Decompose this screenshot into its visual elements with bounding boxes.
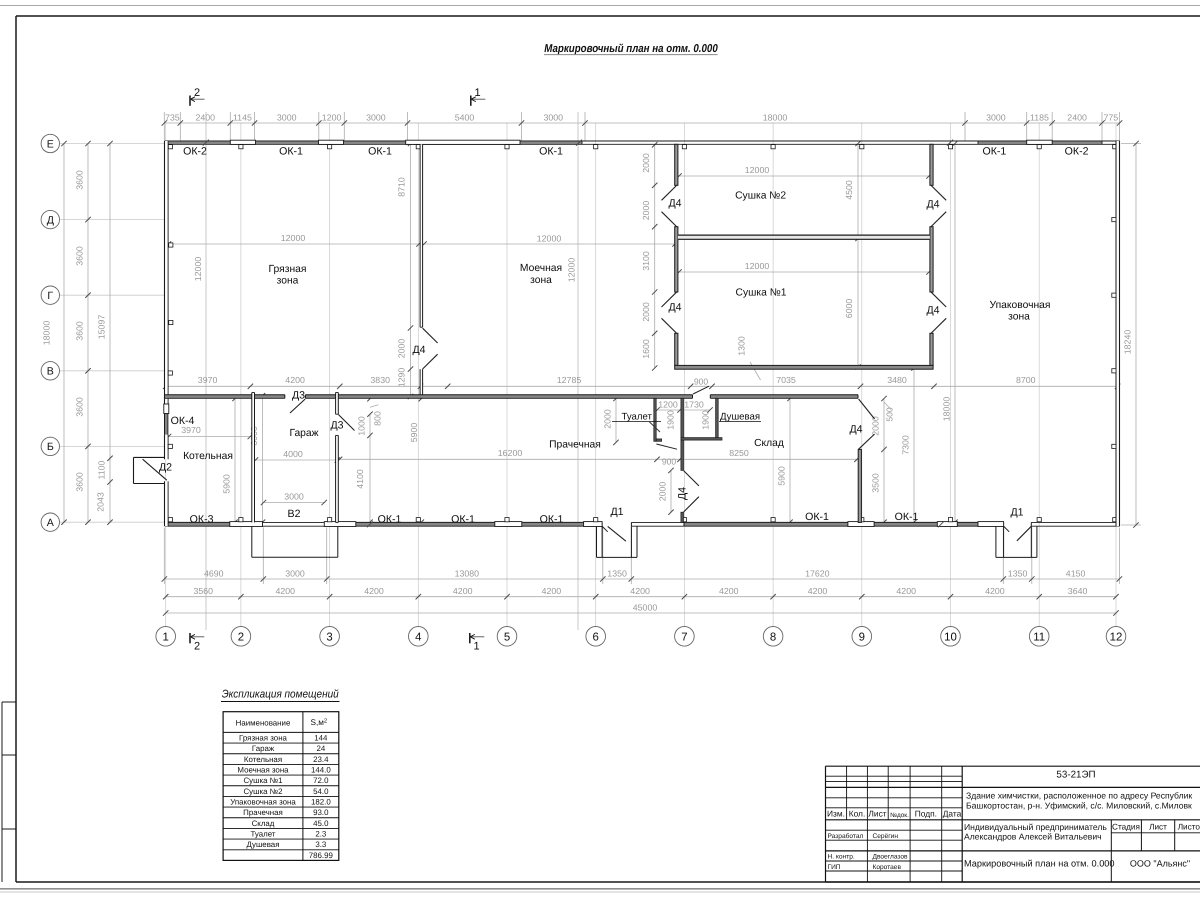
svg-text:900: 900 <box>662 457 677 467</box>
svg-text:3100: 3100 <box>641 251 651 271</box>
svg-text:3560: 3560 <box>194 586 214 596</box>
svg-text:4000: 4000 <box>283 449 303 459</box>
svg-text:Котельная: Котельная <box>244 755 282 764</box>
svg-text:Изм.: Изм. <box>827 809 845 819</box>
svg-text:Сушка №1: Сушка №1 <box>736 288 787 299</box>
svg-text:4200: 4200 <box>285 375 305 385</box>
svg-text:ГИП: ГИП <box>828 864 841 871</box>
svg-text:Листов: Листов <box>1178 823 1200 832</box>
svg-text:500: 500 <box>885 407 895 422</box>
svg-text:18240: 18240 <box>1123 330 1133 355</box>
svg-text:4200: 4200 <box>542 586 562 596</box>
svg-text:18000: 18000 <box>763 112 788 122</box>
svg-text:1000: 1000 <box>356 416 366 436</box>
svg-text:4100: 4100 <box>355 469 365 489</box>
svg-text:3640: 3640 <box>1068 586 1088 596</box>
svg-text:Котельная: Котельная <box>183 451 233 462</box>
svg-text:12000: 12000 <box>281 233 306 243</box>
svg-text:Индивидуальный предприниматель: Индивидуальный предприниматель <box>964 822 1107 832</box>
svg-text:2000: 2000 <box>641 201 651 221</box>
svg-text:8700: 8700 <box>1016 375 1036 385</box>
svg-text:3600: 3600 <box>75 321 85 341</box>
svg-text:ОК-1: ОК-1 <box>540 513 564 525</box>
svg-text:786.99: 786.99 <box>309 851 334 860</box>
svg-text:ОК-1: ОК-1 <box>539 145 563 157</box>
svg-text:45.0: 45.0 <box>313 819 329 828</box>
svg-text:зона: зона <box>530 275 552 286</box>
svg-text:3000: 3000 <box>366 112 386 122</box>
svg-text:735: 735 <box>165 112 180 122</box>
svg-text:Лист: Лист <box>1149 823 1167 832</box>
svg-text:11: 11 <box>1033 631 1045 643</box>
svg-text:Грязная: Грязная <box>269 264 307 275</box>
svg-text:144.0: 144.0 <box>311 766 331 775</box>
svg-text:Стадия: Стадия <box>1112 823 1140 832</box>
svg-text:Сушка №2: Сушка №2 <box>243 787 282 796</box>
svg-text:Б: Б <box>47 441 54 453</box>
svg-text:12000: 12000 <box>537 233 562 243</box>
svg-text:1145: 1145 <box>233 112 252 122</box>
svg-text:2000: 2000 <box>396 339 406 359</box>
svg-text:Д3: Д3 <box>330 420 343 432</box>
svg-text:Д4: Д4 <box>668 302 681 314</box>
svg-text:Д4: Д4 <box>412 344 425 356</box>
svg-text:Гараж: Гараж <box>252 744 275 753</box>
svg-text:Д4: Д4 <box>677 487 689 500</box>
svg-text:Д1: Д1 <box>610 506 623 518</box>
svg-text:12000: 12000 <box>745 261 770 271</box>
svg-text:Д4: Д4 <box>926 199 939 211</box>
svg-text:Д4: Д4 <box>926 305 939 317</box>
svg-text:ОК-1: ОК-1 <box>805 511 829 523</box>
svg-text:2400: 2400 <box>1067 112 1087 122</box>
svg-text:1290: 1290 <box>396 368 406 388</box>
svg-text:3500: 3500 <box>870 473 880 493</box>
svg-text:2000: 2000 <box>870 416 880 436</box>
svg-text:5: 5 <box>504 631 510 643</box>
svg-text:4: 4 <box>415 631 421 643</box>
svg-text:Туалет: Туалет <box>622 412 653 423</box>
svg-text:1600: 1600 <box>641 339 651 359</box>
svg-text:ОК-1: ОК-1 <box>451 513 475 525</box>
svg-text:7: 7 <box>681 631 687 643</box>
svg-text:900: 900 <box>694 377 709 387</box>
svg-text:1: 1 <box>474 87 480 99</box>
svg-text:5900: 5900 <box>221 474 231 494</box>
svg-text:Моечная зона: Моечная зона <box>237 766 289 775</box>
svg-text:1185: 1185 <box>1030 112 1049 122</box>
svg-text:ОК-4: ОК-4 <box>171 415 195 427</box>
svg-text:Дата: Дата <box>943 809 962 819</box>
svg-text:Башкортостан, р-н. Уфимский, с: Башкортостан, р-н. Уфимский, с/с. Миловс… <box>966 801 1192 811</box>
svg-text:Экспликация помещений: Экспликация помещений <box>222 689 339 701</box>
svg-text:24: 24 <box>316 744 325 753</box>
svg-text:ОК-1: ОК-1 <box>279 145 303 157</box>
svg-text:8250: 8250 <box>729 448 749 458</box>
svg-text:6: 6 <box>593 631 599 643</box>
svg-text:ОК-2: ОК-2 <box>183 145 207 157</box>
svg-text:12000: 12000 <box>745 165 770 175</box>
svg-text:3830: 3830 <box>370 375 390 385</box>
svg-text:1350: 1350 <box>607 568 627 578</box>
svg-text:4500: 4500 <box>844 180 854 200</box>
svg-text:В2: В2 <box>288 508 301 520</box>
svg-text:1350: 1350 <box>1008 568 1028 578</box>
svg-text:8710: 8710 <box>396 177 406 197</box>
svg-text:3000: 3000 <box>544 112 564 122</box>
svg-text:4200: 4200 <box>896 586 916 596</box>
svg-text:Душевая: Душевая <box>720 412 760 423</box>
svg-text:15097: 15097 <box>97 315 107 340</box>
svg-text:4200: 4200 <box>808 586 828 596</box>
svg-text:Моечная: Моечная <box>520 263 562 274</box>
svg-text:Д4: Д4 <box>668 198 681 210</box>
svg-text:1200: 1200 <box>658 399 678 409</box>
svg-text:800: 800 <box>373 411 383 426</box>
svg-text:2000: 2000 <box>641 302 651 322</box>
svg-text:4200: 4200 <box>985 586 1005 596</box>
svg-text:18000: 18000 <box>941 397 951 422</box>
svg-text:10: 10 <box>944 631 957 643</box>
svg-text:93.0: 93.0 <box>313 808 329 817</box>
svg-text:Душевая: Душевая <box>247 840 280 849</box>
svg-text:Двоеглазов: Двоеглазов <box>873 854 909 861</box>
svg-text:7300: 7300 <box>900 435 910 455</box>
svg-text:Серёгин: Серёгин <box>873 833 899 840</box>
svg-text:2: 2 <box>238 631 244 643</box>
svg-text:В: В <box>47 366 54 378</box>
svg-text:зона: зона <box>1008 312 1030 323</box>
svg-text:№док.: №док. <box>890 812 909 819</box>
svg-text:3600: 3600 <box>75 472 85 492</box>
svg-text:Г: Г <box>47 290 53 302</box>
svg-text:ОК-1: ОК-1 <box>895 511 919 523</box>
svg-text:2000: 2000 <box>641 153 651 173</box>
svg-text:12000: 12000 <box>567 258 577 283</box>
svg-text:Прачечная: Прачечная <box>549 440 601 451</box>
svg-text:Коротаев: Коротаев <box>873 864 902 871</box>
svg-text:Маркировочный план на отм. 0.0: Маркировочный план на отм. 0.000 <box>544 43 718 55</box>
svg-text:Здание химчистки, расположенн: Здание химчистки, расположенное по адрес… <box>966 791 1192 801</box>
svg-text:4690: 4690 <box>204 568 224 578</box>
svg-text:Маркировочный план на отм. 0.0: Маркировочный план на отм. 0.000 <box>964 858 1115 868</box>
svg-text:4150: 4150 <box>1066 568 1086 578</box>
svg-text:ОК-3: ОК-3 <box>190 513 214 525</box>
svg-text:775: 775 <box>1103 112 1118 122</box>
svg-text:4200: 4200 <box>719 586 739 596</box>
svg-text:45000: 45000 <box>633 602 658 612</box>
svg-text:4200: 4200 <box>364 586 384 596</box>
svg-text:Склад: Склад <box>754 438 784 449</box>
svg-text:12785: 12785 <box>557 375 582 385</box>
svg-text:Разработал: Разработал <box>828 833 864 840</box>
svg-text:Д4: Д4 <box>849 423 862 435</box>
svg-text:Склад: Склад <box>252 819 275 828</box>
svg-text:Е: Е <box>47 138 54 150</box>
svg-text:1: 1 <box>473 641 479 653</box>
svg-text:12000: 12000 <box>193 257 203 282</box>
svg-text:Лист: Лист <box>868 809 886 819</box>
svg-text:2400: 2400 <box>196 112 216 122</box>
svg-text:2043: 2043 <box>96 492 106 512</box>
svg-text:ОК-1: ОК-1 <box>378 513 402 525</box>
svg-text:6000: 6000 <box>844 299 854 319</box>
svg-text:Наименование: Наименование <box>236 719 291 728</box>
svg-text:182.0: 182.0 <box>311 798 331 807</box>
svg-text:8: 8 <box>770 631 776 643</box>
svg-text:1200: 1200 <box>322 112 342 122</box>
svg-text:16200: 16200 <box>498 448 523 458</box>
svg-text:3480: 3480 <box>887 375 907 385</box>
svg-text:2000: 2000 <box>602 409 612 429</box>
svg-text:3000: 3000 <box>277 112 297 122</box>
svg-text:4200: 4200 <box>276 586 296 596</box>
svg-text:2.3: 2.3 <box>315 830 327 839</box>
svg-text:А: А <box>47 517 55 529</box>
svg-text:Сушка №1: Сушка №1 <box>243 776 282 785</box>
svg-text:3600: 3600 <box>75 397 85 417</box>
svg-text:5900: 5900 <box>776 466 786 486</box>
svg-text:зона: зона <box>277 276 299 287</box>
svg-text:4200: 4200 <box>630 586 650 596</box>
svg-text:12: 12 <box>1110 631 1123 643</box>
svg-text:Д2: Д2 <box>159 462 172 474</box>
svg-text:Сушка №2: Сушка №2 <box>735 190 786 201</box>
svg-text:2: 2 <box>194 641 200 653</box>
svg-text:ООО "Альянс": ООО "Альянс" <box>1130 858 1190 868</box>
svg-text:Д: Д <box>47 214 54 226</box>
svg-text:Александров Алексей Витальевич: Александров Алексей Витальевич <box>964 832 1102 842</box>
svg-text:Н. контр.: Н. контр. <box>828 854 855 861</box>
svg-text:Д3: Д3 <box>292 389 305 401</box>
svg-text:1: 1 <box>163 631 169 643</box>
svg-text:5400: 5400 <box>455 112 475 122</box>
svg-text:1730: 1730 <box>684 399 704 409</box>
svg-text:53-21ЭП: 53-21ЭП <box>1056 770 1095 781</box>
svg-text:3.3: 3.3 <box>315 840 327 849</box>
svg-text:2: 2 <box>194 87 200 99</box>
svg-text:2000: 2000 <box>657 482 667 502</box>
svg-text:7035: 7035 <box>776 375 796 385</box>
svg-text:144: 144 <box>314 734 328 743</box>
svg-text:1300: 1300 <box>736 336 746 356</box>
svg-text:9: 9 <box>859 631 865 643</box>
svg-text:3600: 3600 <box>75 170 85 190</box>
svg-text:1900: 1900 <box>700 410 710 430</box>
svg-text:3970: 3970 <box>198 375 218 385</box>
svg-text:Гараж: Гараж <box>289 428 318 439</box>
svg-text:54.0: 54.0 <box>313 787 329 796</box>
svg-text:1900: 1900 <box>665 410 675 430</box>
svg-text:72.0: 72.0 <box>313 776 329 785</box>
svg-text:Д1: Д1 <box>1010 507 1023 519</box>
svg-text:1100: 1100 <box>97 460 107 479</box>
svg-text:3000: 3000 <box>284 491 304 501</box>
svg-text:3600: 3600 <box>75 246 85 266</box>
svg-text:4200: 4200 <box>453 586 473 596</box>
svg-text:ОК-1: ОК-1 <box>982 145 1006 157</box>
svg-text:Прачечная: Прачечная <box>243 808 283 817</box>
svg-text:18000: 18000 <box>42 321 52 346</box>
svg-text:ОК-2: ОК-2 <box>1065 145 1089 157</box>
svg-text:Упаковочная: Упаковочная <box>990 300 1051 311</box>
svg-text:Грязная зона: Грязная зона <box>239 734 288 743</box>
svg-text:Туалет: Туалет <box>251 830 276 839</box>
svg-text:Кол.: Кол. <box>849 809 866 819</box>
svg-text:Подп.: Подп. <box>915 809 937 819</box>
svg-text:3000: 3000 <box>986 112 1006 122</box>
svg-text:Упаковочная зона: Упаковочная зона <box>230 798 296 807</box>
svg-text:5900: 5900 <box>409 423 419 443</box>
svg-text:13080: 13080 <box>455 568 480 578</box>
svg-text:3: 3 <box>326 631 332 643</box>
svg-text:23.4: 23.4 <box>313 755 329 764</box>
svg-text:3000: 3000 <box>285 568 305 578</box>
svg-text:ОК-1: ОК-1 <box>368 145 392 157</box>
svg-text:17620: 17620 <box>805 568 830 578</box>
